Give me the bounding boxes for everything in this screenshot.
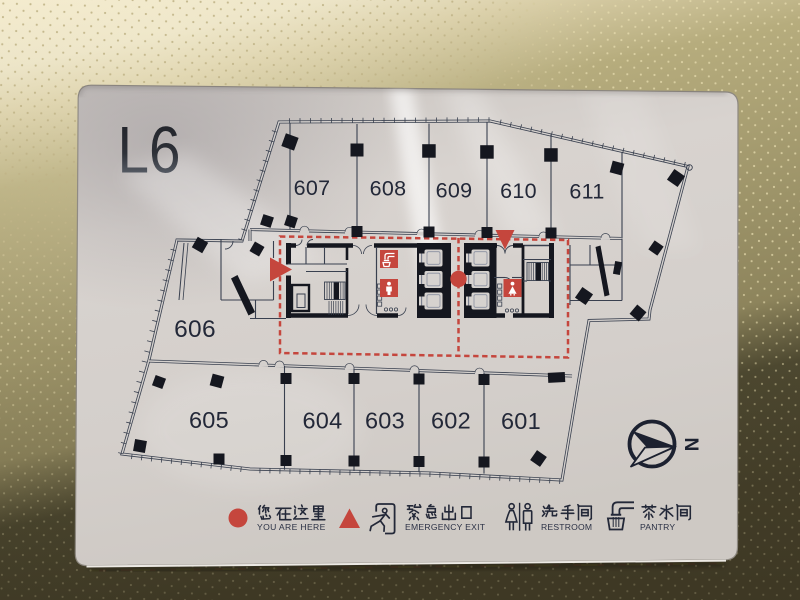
svg-text:605: 605 <box>189 407 229 433</box>
svg-text:610: 610 <box>500 179 537 203</box>
svg-text:608: 608 <box>370 177 407 201</box>
svg-text:601: 601 <box>501 408 541 434</box>
svg-text:606: 606 <box>174 316 216 343</box>
svg-text:YOU ARE HERE: YOU ARE HERE <box>257 522 326 532</box>
svg-text:RESTROOM: RESTROOM <box>541 522 592 532</box>
svg-text:607: 607 <box>294 176 331 200</box>
svg-text:609: 609 <box>436 179 473 203</box>
svg-text:N: N <box>680 438 701 452</box>
svg-text:PANTRY: PANTRY <box>640 522 675 532</box>
svg-text:603: 603 <box>365 408 405 434</box>
svg-text:604: 604 <box>302 408 342 434</box>
svg-text:L6: L6 <box>118 113 181 187</box>
svg-text:602: 602 <box>431 408 471 434</box>
svg-text:611: 611 <box>569 180 604 204</box>
svg-text:EMERGENCY EXIT: EMERGENCY EXIT <box>405 522 486 532</box>
